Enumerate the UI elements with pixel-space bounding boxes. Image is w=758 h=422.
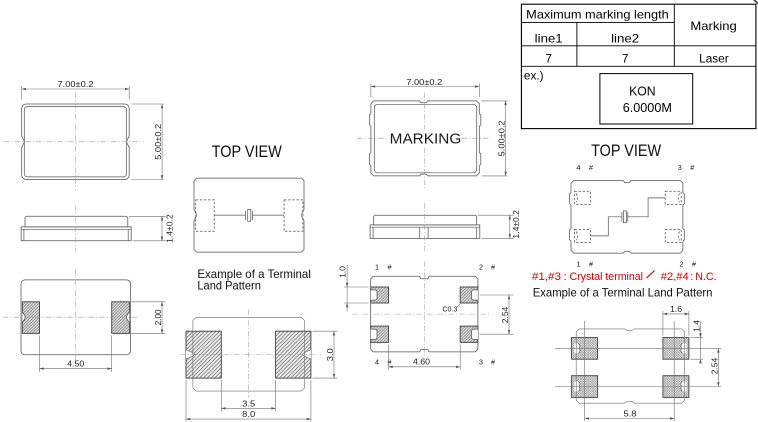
svg-text:3: 3: [479, 358, 483, 367]
svg-text:5.00±0.2: 5.00±0.2: [497, 120, 507, 156]
svg-text:5.00±0.2: 5.00±0.2: [153, 123, 163, 159]
svg-text:#: #: [589, 163, 593, 172]
svg-text:7: 7: [545, 52, 552, 66]
svg-text:Laser: Laser: [699, 51, 729, 65]
svg-text:2: 2: [680, 260, 684, 269]
svg-text:5.8: 5.8: [624, 409, 637, 419]
svg-text:2.00: 2.00: [153, 309, 163, 325]
svg-text:N.C.: N.C.: [695, 271, 716, 283]
svg-text:3.5: 3.5: [242, 398, 255, 408]
svg-text:#1,#3: #1,#3: [532, 271, 561, 283]
svg-text:4: 4: [375, 358, 379, 367]
svg-text:#: #: [692, 260, 696, 269]
svg-text::: :: [690, 271, 693, 283]
svg-text:6.0000M: 6.0000M: [623, 100, 672, 115]
svg-text:4: 4: [577, 163, 581, 172]
svg-text:Land Pattern: Land Pattern: [197, 279, 261, 292]
svg-text:#: #: [491, 263, 495, 272]
svg-text:1: 1: [577, 260, 581, 269]
svg-text:8.0: 8.0: [242, 409, 255, 419]
svg-text:C0.3: C0.3: [442, 304, 457, 313]
svg-text:#: #: [388, 263, 392, 272]
svg-text:#: #: [589, 260, 593, 269]
svg-text::: :: [564, 271, 567, 283]
svg-text:ex.): ex.): [524, 69, 544, 83]
svg-text:1.6: 1.6: [670, 304, 682, 314]
svg-text:7.00±0.2: 7.00±0.2: [58, 79, 94, 89]
svg-text:2.54: 2.54: [709, 357, 719, 374]
svg-text:#: #: [690, 163, 694, 172]
svg-text:4.50: 4.50: [67, 359, 84, 369]
svg-text:Crystal terminal: Crystal terminal: [570, 271, 644, 283]
svg-text:3: 3: [678, 163, 682, 172]
svg-text:line2: line2: [611, 31, 639, 45]
svg-text:Maximum marking length: Maximum marking length: [526, 7, 669, 21]
svg-text:2.54: 2.54: [500, 306, 510, 323]
svg-text:1.4: 1.4: [691, 320, 701, 332]
svg-text:#2,#4: #2,#4: [661, 271, 689, 283]
svg-text:#: #: [388, 358, 392, 367]
svg-text:Example of a Terminal Land Pat: Example of a Terminal Land Pattern: [533, 286, 713, 299]
svg-text:7: 7: [622, 52, 629, 66]
svg-text:2: 2: [479, 263, 483, 272]
svg-text:1.0: 1.0: [337, 266, 347, 278]
svg-text:MARKING: MARKING: [390, 131, 462, 147]
svg-text:TOP VIEW: TOP VIEW: [212, 143, 282, 161]
svg-text:Marking: Marking: [690, 19, 737, 33]
svg-text:KON: KON: [629, 84, 655, 99]
svg-text:#: #: [491, 358, 495, 367]
svg-text:line1: line1: [535, 31, 563, 45]
svg-text:1: 1: [375, 263, 379, 272]
svg-text:1.4±0.2: 1.4±0.2: [511, 210, 521, 239]
svg-text:TOP VIEW: TOP VIEW: [591, 142, 661, 160]
svg-text:4.60: 4.60: [413, 357, 430, 367]
svg-text:1.4±0.2: 1.4±0.2: [165, 214, 175, 243]
svg-text:7.00±0.2: 7.00±0.2: [406, 77, 442, 87]
svg-text:3.0: 3.0: [325, 348, 335, 361]
